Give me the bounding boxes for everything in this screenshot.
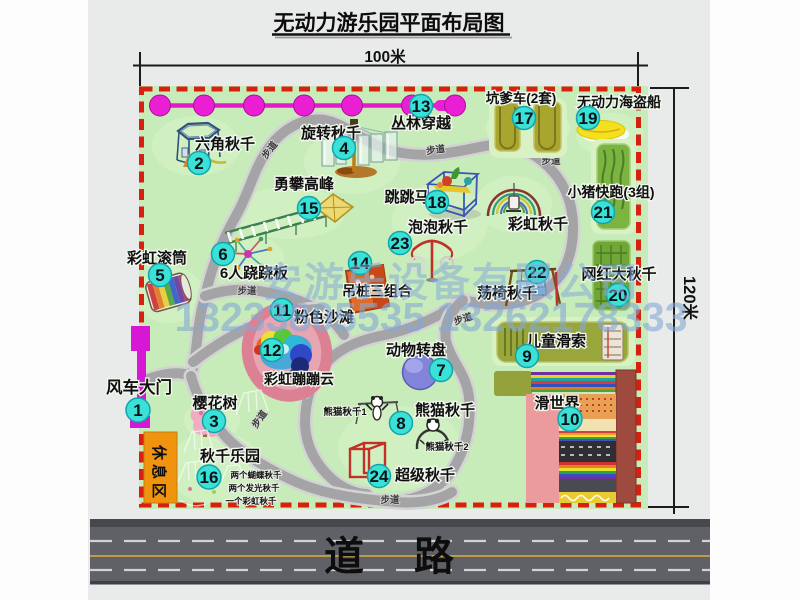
svg-text:步道: 步道 bbox=[380, 494, 400, 506]
svg-text:17: 17 bbox=[515, 109, 534, 128]
svg-text:16: 16 bbox=[200, 468, 219, 487]
svg-text:4: 4 bbox=[339, 139, 349, 158]
svg-text:休息区: 休息区 bbox=[150, 444, 168, 502]
svg-text:13: 13 bbox=[412, 97, 431, 116]
svg-text:1: 1 bbox=[133, 401, 142, 420]
svg-text:风车大门: 风车大门 bbox=[106, 377, 172, 397]
svg-text:5: 5 bbox=[155, 266, 164, 285]
svg-text:8: 8 bbox=[396, 414, 405, 433]
svg-text:跳跳马: 跳跳马 bbox=[384, 188, 429, 206]
svg-text:3: 3 bbox=[209, 412, 218, 431]
svg-text:道: 道 bbox=[324, 535, 364, 579]
svg-text:熊猫秋千1: 熊猫秋千1 bbox=[323, 406, 367, 418]
svg-text:动物转盘: 动物转盘 bbox=[386, 341, 446, 359]
svg-text:18: 18 bbox=[428, 193, 447, 212]
svg-text:彩虹蹦蹦云: 彩虹蹦蹦云 bbox=[263, 371, 334, 387]
svg-text:六角秋千: 六角秋千 bbox=[195, 135, 255, 153]
svg-text:彩虹秋千: 彩虹秋千 bbox=[507, 215, 568, 233]
svg-text:6: 6 bbox=[218, 245, 227, 264]
svg-text:13233805535 13262178333: 13233805535 13262178333 bbox=[174, 294, 687, 340]
svg-text:坑爹车(2套): 坑爹车(2套) bbox=[486, 90, 557, 106]
svg-text:23: 23 bbox=[391, 234, 410, 253]
svg-text:两个蝴蝶秋千: 两个蝴蝶秋千 bbox=[230, 470, 282, 480]
svg-text:熊猫秋千2: 熊猫秋千2 bbox=[425, 441, 468, 453]
svg-text:无动力游乐园平面布局图: 无动力游乐园平面布局图 bbox=[274, 11, 505, 35]
svg-text:21: 21 bbox=[594, 203, 613, 222]
svg-text:24: 24 bbox=[370, 467, 389, 486]
svg-text:10: 10 bbox=[561, 410, 580, 429]
svg-text:路: 路 bbox=[414, 535, 455, 579]
svg-text:两个发光秋千: 两个发光秋千 bbox=[228, 483, 280, 493]
svg-text:7: 7 bbox=[436, 361, 445, 380]
svg-text:勇攀高峰: 勇攀高峰 bbox=[274, 175, 335, 193]
svg-text:泡泡秋千: 泡泡秋千 bbox=[408, 218, 468, 236]
svg-text:一个彩虹秋千: 一个彩虹秋千 bbox=[225, 496, 277, 506]
svg-text:19: 19 bbox=[579, 109, 598, 128]
svg-text:秋千乐园: 秋千乐园 bbox=[200, 447, 260, 465]
svg-text:小猪快跑(3组): 小猪快跑(3组) bbox=[567, 184, 654, 200]
svg-text:12: 12 bbox=[263, 341, 282, 360]
svg-text:超级秋千: 超级秋千 bbox=[394, 466, 455, 484]
svg-text:熊猫秋千: 熊猫秋千 bbox=[415, 401, 475, 419]
svg-text:100米: 100米 bbox=[364, 47, 406, 66]
svg-text:2: 2 bbox=[194, 154, 203, 173]
svg-text:15: 15 bbox=[300, 199, 319, 218]
svg-text:9: 9 bbox=[522, 347, 531, 366]
